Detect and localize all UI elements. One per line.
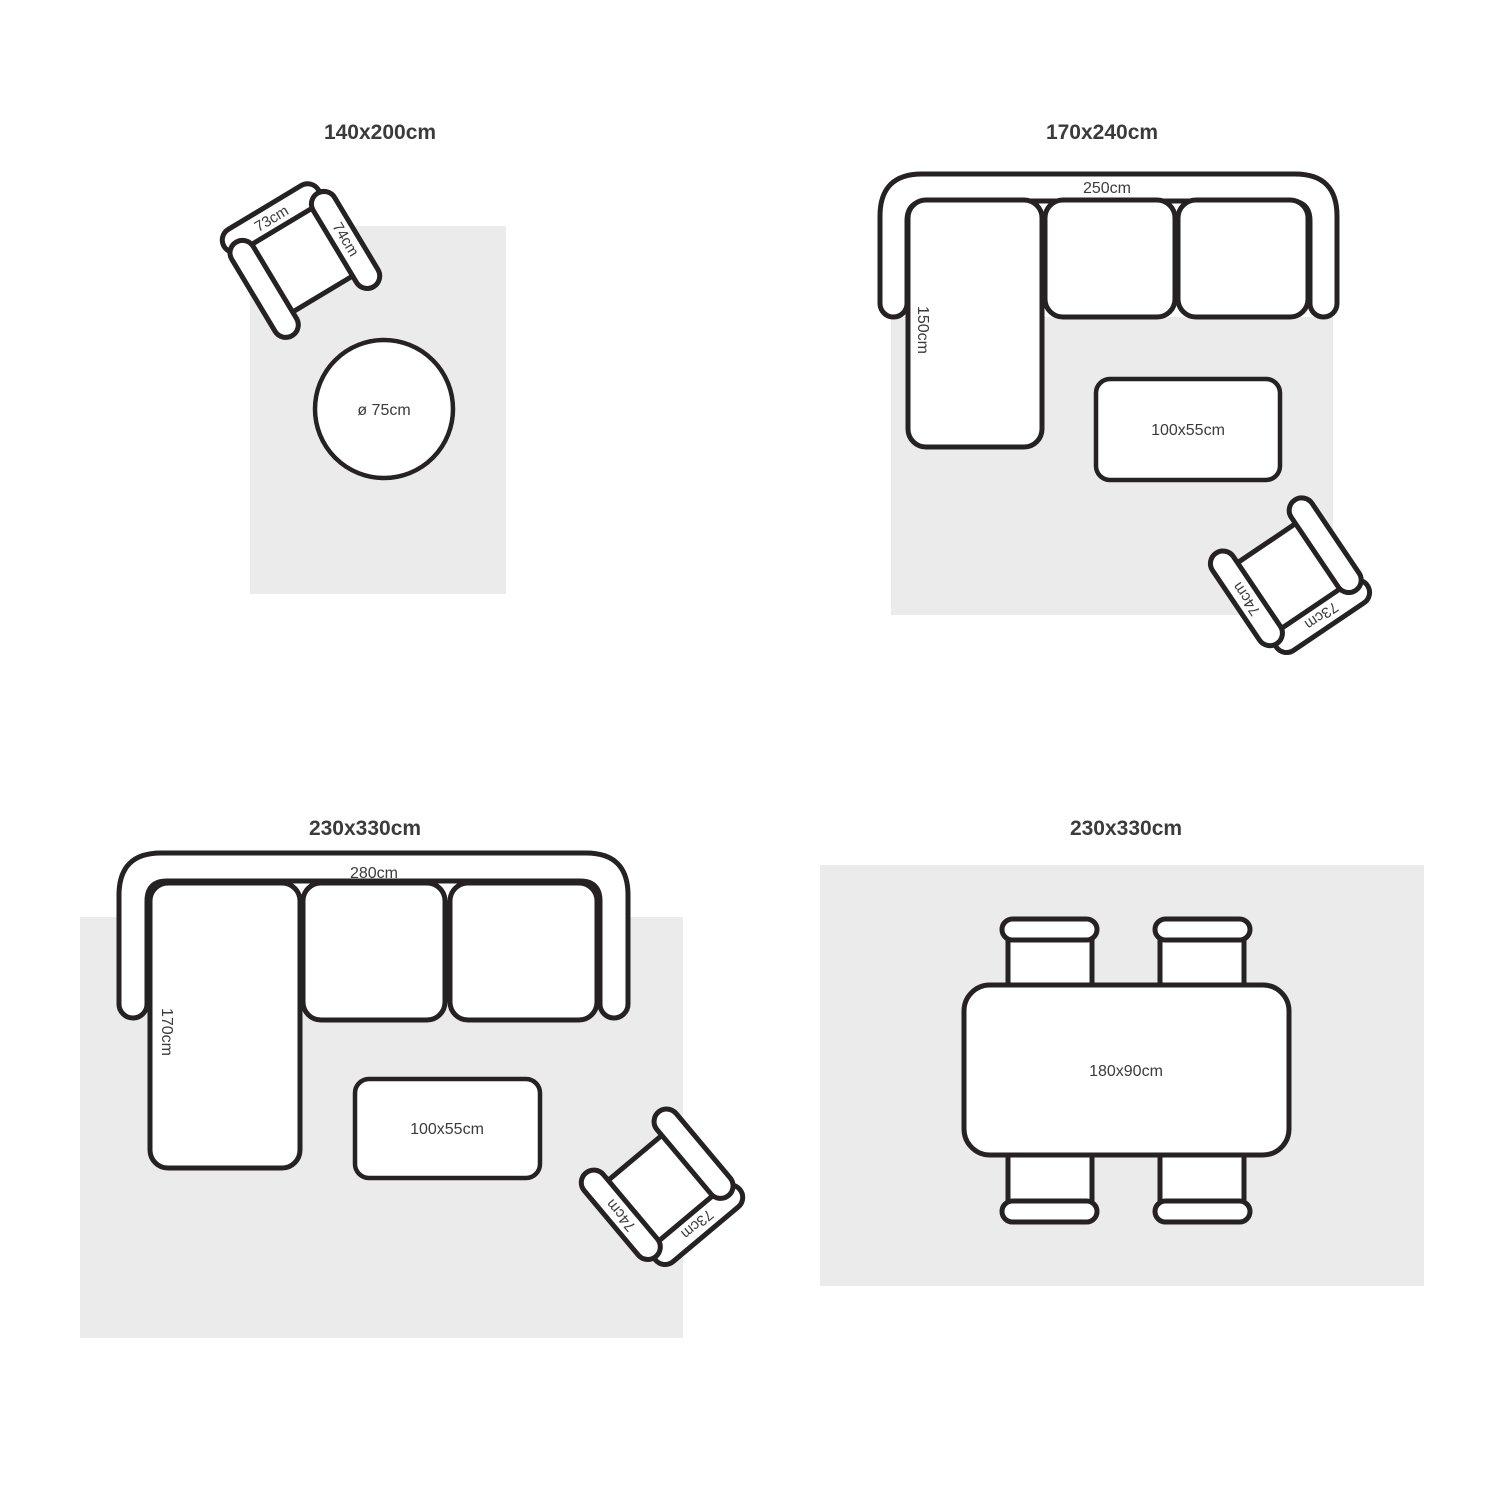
sofa-right-cushion xyxy=(1178,200,1308,317)
sofa-width-label: 250cm xyxy=(1083,180,1131,197)
section-170x240: 170x240cm 250cm 150cm 100x55cm 73cm 74cm xyxy=(750,0,1500,750)
sofa-depth-label: 150cm xyxy=(914,306,931,354)
section-title: 140x200cm xyxy=(324,121,436,144)
section-140x200: 140x200cm ø 75cm 73cm 74cm xyxy=(0,0,750,750)
sofa-right-cushion xyxy=(450,883,597,1020)
round-table-label: ø 75cm xyxy=(357,402,410,419)
chair-seat xyxy=(1008,1150,1092,1205)
dining-chair-bottom-left xyxy=(1002,1150,1097,1222)
chair-seat xyxy=(1160,935,1244,990)
chair-backrest xyxy=(1002,919,1097,940)
sofa-middle-cushion xyxy=(303,883,445,1020)
section-230x330-dining: 230x330cm 180x90cm xyxy=(750,750,1500,1500)
chair-backrest xyxy=(1002,1201,1097,1222)
section-title: 230x330cm xyxy=(1070,817,1182,840)
chair-backrest xyxy=(1155,1201,1250,1222)
section-title: 170x240cm xyxy=(1046,121,1158,144)
chair-backrest xyxy=(1155,919,1250,940)
coffee-table-label: 100x55cm xyxy=(410,1121,484,1138)
rug-size-guide: 140x200cm ø 75cm 73cm 74cm 170x240cm 250… xyxy=(0,0,1500,1500)
coffee-table-label: 100x55cm xyxy=(1151,422,1225,439)
dining-chair-top-right xyxy=(1155,919,1250,990)
dining-table-label: 180x90cm xyxy=(1089,1063,1163,1080)
chair-seat xyxy=(1160,1150,1244,1205)
sofa-depth-label: 170cm xyxy=(158,1008,175,1056)
section-title: 230x330cm xyxy=(309,817,421,840)
chair-seat xyxy=(1008,935,1092,990)
dining-chair-bottom-right xyxy=(1155,1150,1250,1222)
sofa-width-label: 280cm xyxy=(350,865,398,882)
section-230x330-living: 230x330cm 280cm 170cm 100x55cm 73cm 74cm xyxy=(0,750,750,1500)
dining-chair-top-left xyxy=(1002,919,1097,990)
sofa-middle-cushion xyxy=(1045,200,1175,317)
